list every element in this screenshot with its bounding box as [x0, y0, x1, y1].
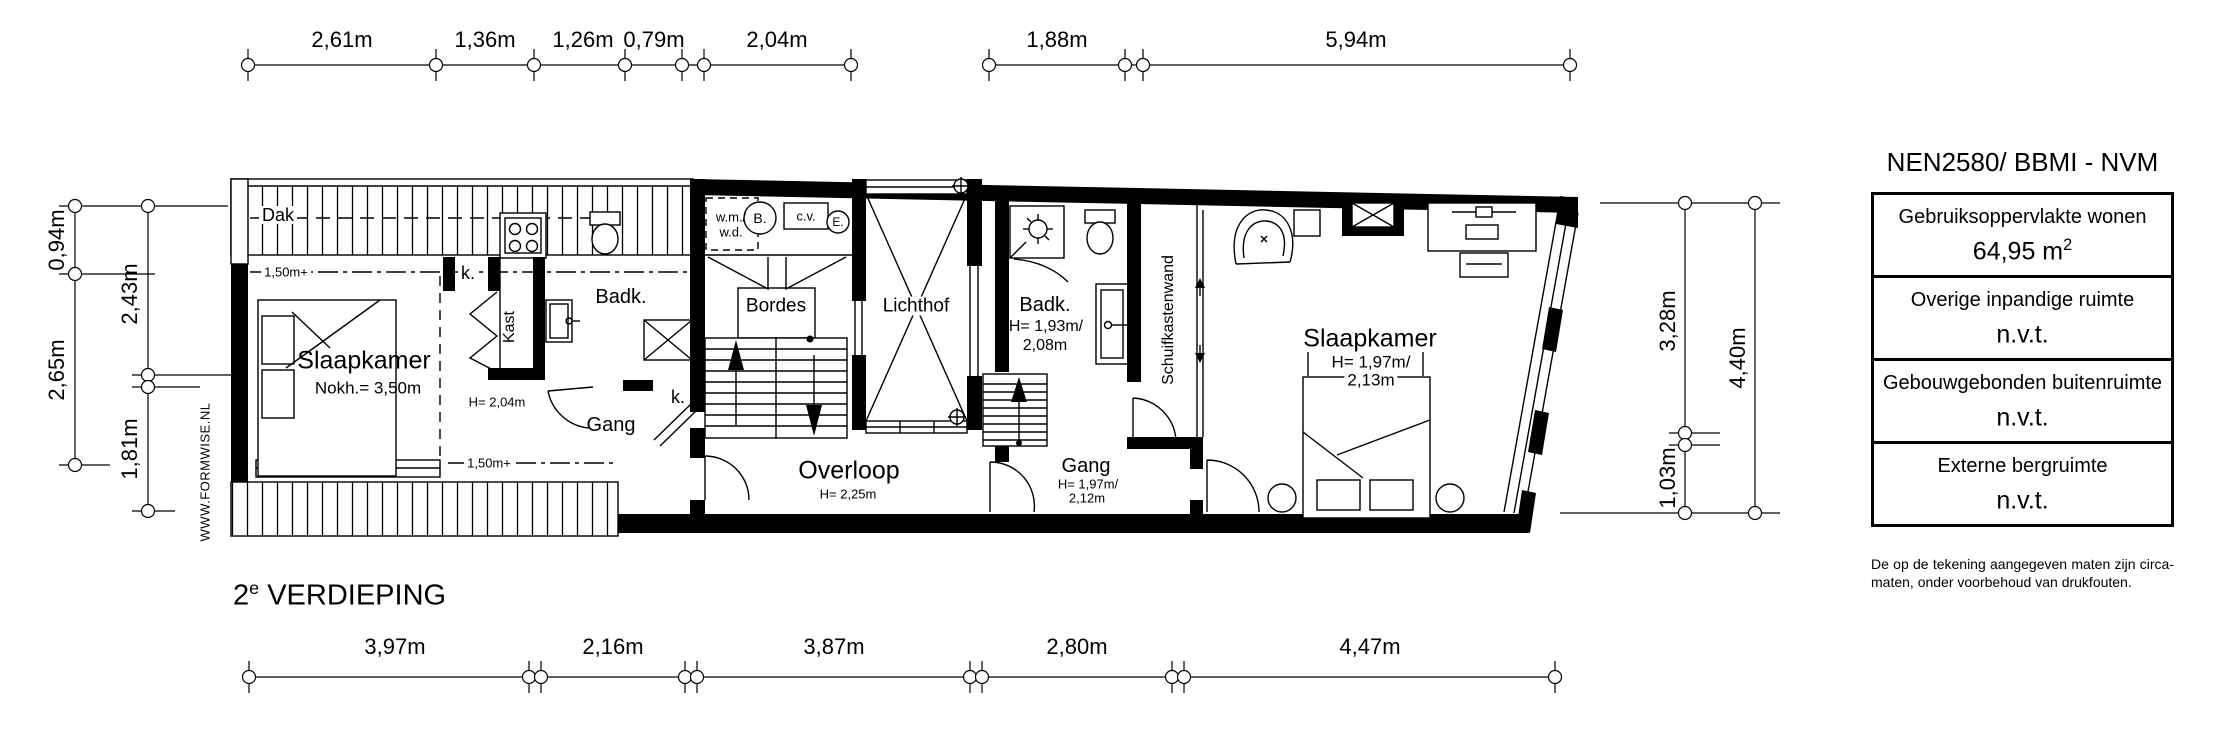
dim-bottom-4: 2,80m	[1046, 636, 1107, 658]
gang-right-height-1: H= 1,97m/	[1058, 478, 1118, 491]
legend-table: Gebruiksoppervlakte wonen 64,95 m2 Overi…	[1871, 192, 2174, 527]
dim-bottom-2: 2,16m	[582, 636, 643, 658]
legend-row: Gebouwgebonden buitenruimte n.v.t.	[1874, 358, 2171, 441]
toilet-icon	[1085, 210, 1115, 254]
room-label-slaapkamer-right: Slaapkamer	[1303, 327, 1436, 352]
room-label-closet-2: k.	[668, 388, 688, 406]
room-label-dak: Dak	[259, 206, 297, 224]
armchair-icon	[1234, 210, 1293, 264]
legend-row: Gebruiksoppervlakte wonen 64,95 m2	[1874, 195, 2171, 275]
sink-icon	[1096, 284, 1128, 364]
legend-row: Overige inpandige ruimte n.v.t.	[1874, 275, 2171, 358]
room-label-badkamer-left: Badk.	[595, 287, 646, 307]
door-height-note: H= 2,04m	[466, 396, 529, 409]
dim-bottom-3: 3,87m	[803, 636, 864, 658]
desk-icon	[1428, 203, 1536, 277]
nightstand-icon	[1436, 484, 1464, 512]
dim-top-3: 1,26m	[552, 29, 613, 51]
room-label-lichthof: Lichthof	[880, 297, 953, 316]
room-label-schuifkastenwand: Schuifkastenwand	[1161, 255, 1177, 385]
legend-title: NEN2580/ BBMI - NVM	[1871, 147, 2174, 178]
badkamer-right-height-1: H= 1,93m/	[1009, 319, 1083, 335]
dim-left-outer-1: 0,94m	[46, 209, 68, 270]
legend-row-value: n.v.t.	[1874, 319, 2171, 349]
dim-top-4: 0,79m	[623, 29, 684, 51]
dim-right-outer-1: 4,40m	[1727, 327, 1749, 388]
nightstand-icon	[1268, 484, 1296, 512]
dim-left-inner-2: 1,81m	[119, 418, 141, 479]
room-label-slaapkamer-left: Slaapkamer	[297, 349, 430, 374]
room-label-closet-1: k.	[458, 264, 478, 282]
slaapkamer-right-height-2: 2,13m	[1344, 372, 1397, 389]
room-label-overloop: Overloop	[798, 459, 899, 484]
label-dryer: w.d.	[719, 226, 742, 239]
dim-right-inner-1: 3,28m	[1657, 290, 1679, 351]
toilet-icon	[590, 212, 620, 254]
watermark: WWW.FORMWISE.NL	[199, 403, 212, 542]
dim-top-6: 1,88m	[1026, 29, 1087, 51]
legend-row-label: Gebruiksoppervlakte wonen	[1874, 206, 2171, 229]
roof-height-line-upper: 1,50m+	[261, 266, 311, 279]
room-label-badkamer-right: Badk.	[1019, 295, 1070, 315]
label-boiler: B.	[753, 211, 766, 225]
legend-row-value: n.v.t.	[1874, 402, 2171, 432]
dim-top-5: 2,04m	[746, 29, 807, 51]
room-label-gang-left: Gang	[587, 415, 636, 435]
legend-row-label: Overige inpandige ruimte	[1874, 289, 2171, 312]
label-electric: E.	[832, 216, 843, 228]
shower-light-icon	[1010, 206, 1064, 258]
dim-top-1: 2,61m	[311, 29, 372, 51]
dim-left-inner-1: 2,43m	[119, 263, 141, 324]
floorplan-page: 2,61m 1,36m 1,26m 0,79m 2,04m 1,88m 5,94…	[0, 0, 2221, 741]
stairs-small-icon	[983, 374, 1047, 446]
dim-bottom-5: 4,47m	[1339, 636, 1400, 658]
bed-icon	[1303, 377, 1430, 518]
dim-bottom-1: 3,97m	[364, 636, 425, 658]
legend-row-value: n.v.t.	[1874, 485, 2171, 515]
skylight-icon	[1352, 203, 1394, 227]
legend-row: Externe bergruimte n.v.t.	[1874, 441, 2171, 524]
folding-door-icon	[470, 292, 497, 372]
sink-icon	[546, 300, 580, 342]
legend: NEN2580/ BBMI - NVM Gebruiksoppervlakte …	[1871, 147, 2174, 592]
legend-row-value: 64,95 m2	[1874, 236, 2171, 266]
legend-row-label: Externe bergruimte	[1874, 455, 2171, 478]
dim-top-7: 5,94m	[1325, 29, 1386, 51]
room-note-nokhoogte: Nokh.= 3,50m	[315, 380, 421, 397]
stove-icon	[500, 213, 546, 258]
room-label-kast: Kast	[502, 308, 518, 346]
badkamer-right-height-2: 2,08m	[1023, 338, 1067, 354]
dim-left-outer-2: 2,65m	[46, 339, 68, 400]
dim-right-inner-2: 1,03m	[1657, 447, 1679, 508]
overloop-height-note: H= 2,25m	[820, 488, 877, 501]
label-cv: c.v.	[796, 210, 815, 223]
dim-top-2: 1,36m	[454, 29, 515, 51]
room-label-gang-right: Gang	[1062, 456, 1111, 476]
room-label-bordes: Bordes	[743, 297, 809, 316]
legend-row-label: Gebouwgebonden buitenruimte	[1874, 372, 2171, 395]
gang-right-height-2: 2,12m	[1069, 492, 1105, 505]
roof-height-line-lower: 1,50m+	[464, 457, 514, 470]
double-door-icon	[708, 257, 768, 289]
shower-icon	[644, 320, 692, 360]
label-washer: w.m./	[716, 211, 746, 224]
page-title: 2e VERDIEPING	[233, 578, 446, 613]
legend-disclaimer: De op de tekening aangegeven maten zijn …	[1871, 555, 2174, 592]
slaapkamer-right-height-1: H= 1,97m/	[1329, 354, 1414, 371]
stairs-icon	[705, 336, 847, 439]
side-table-icon	[1294, 210, 1320, 236]
